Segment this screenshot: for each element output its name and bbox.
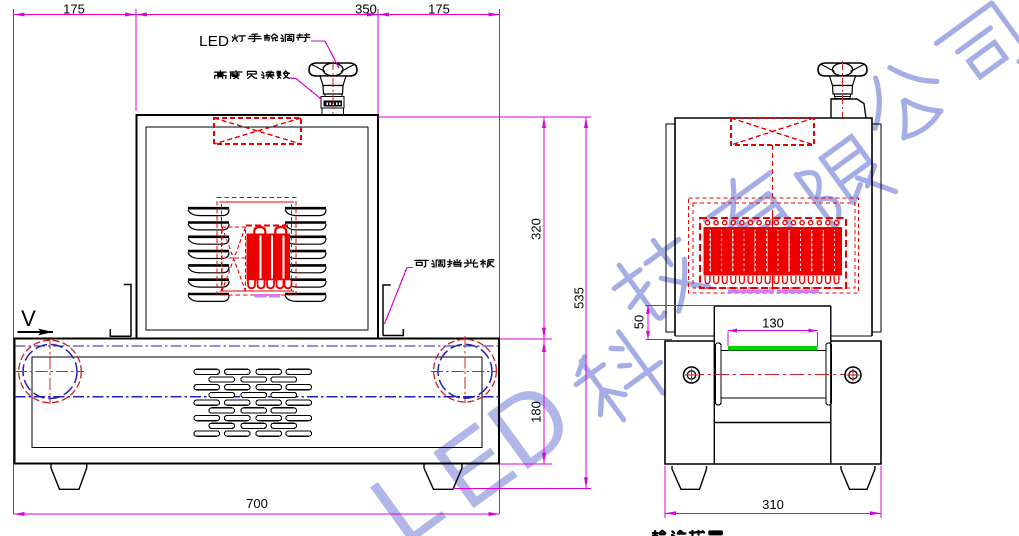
svg-text:175: 175 bbox=[63, 2, 85, 17]
svg-text:175: 175 bbox=[428, 2, 450, 17]
svg-text:LED: LED bbox=[199, 33, 229, 50]
svg-text:130: 130 bbox=[762, 316, 784, 331]
svg-text:350: 350 bbox=[355, 2, 377, 17]
svg-text:535: 535 bbox=[572, 287, 587, 309]
svg-text:310: 310 bbox=[762, 497, 784, 512]
svg-text:180: 180 bbox=[529, 401, 544, 423]
svg-text:700: 700 bbox=[246, 496, 268, 511]
svg-text:50: 50 bbox=[632, 315, 647, 329]
svg-text:320: 320 bbox=[529, 218, 544, 240]
svg-text:V: V bbox=[21, 306, 36, 331]
